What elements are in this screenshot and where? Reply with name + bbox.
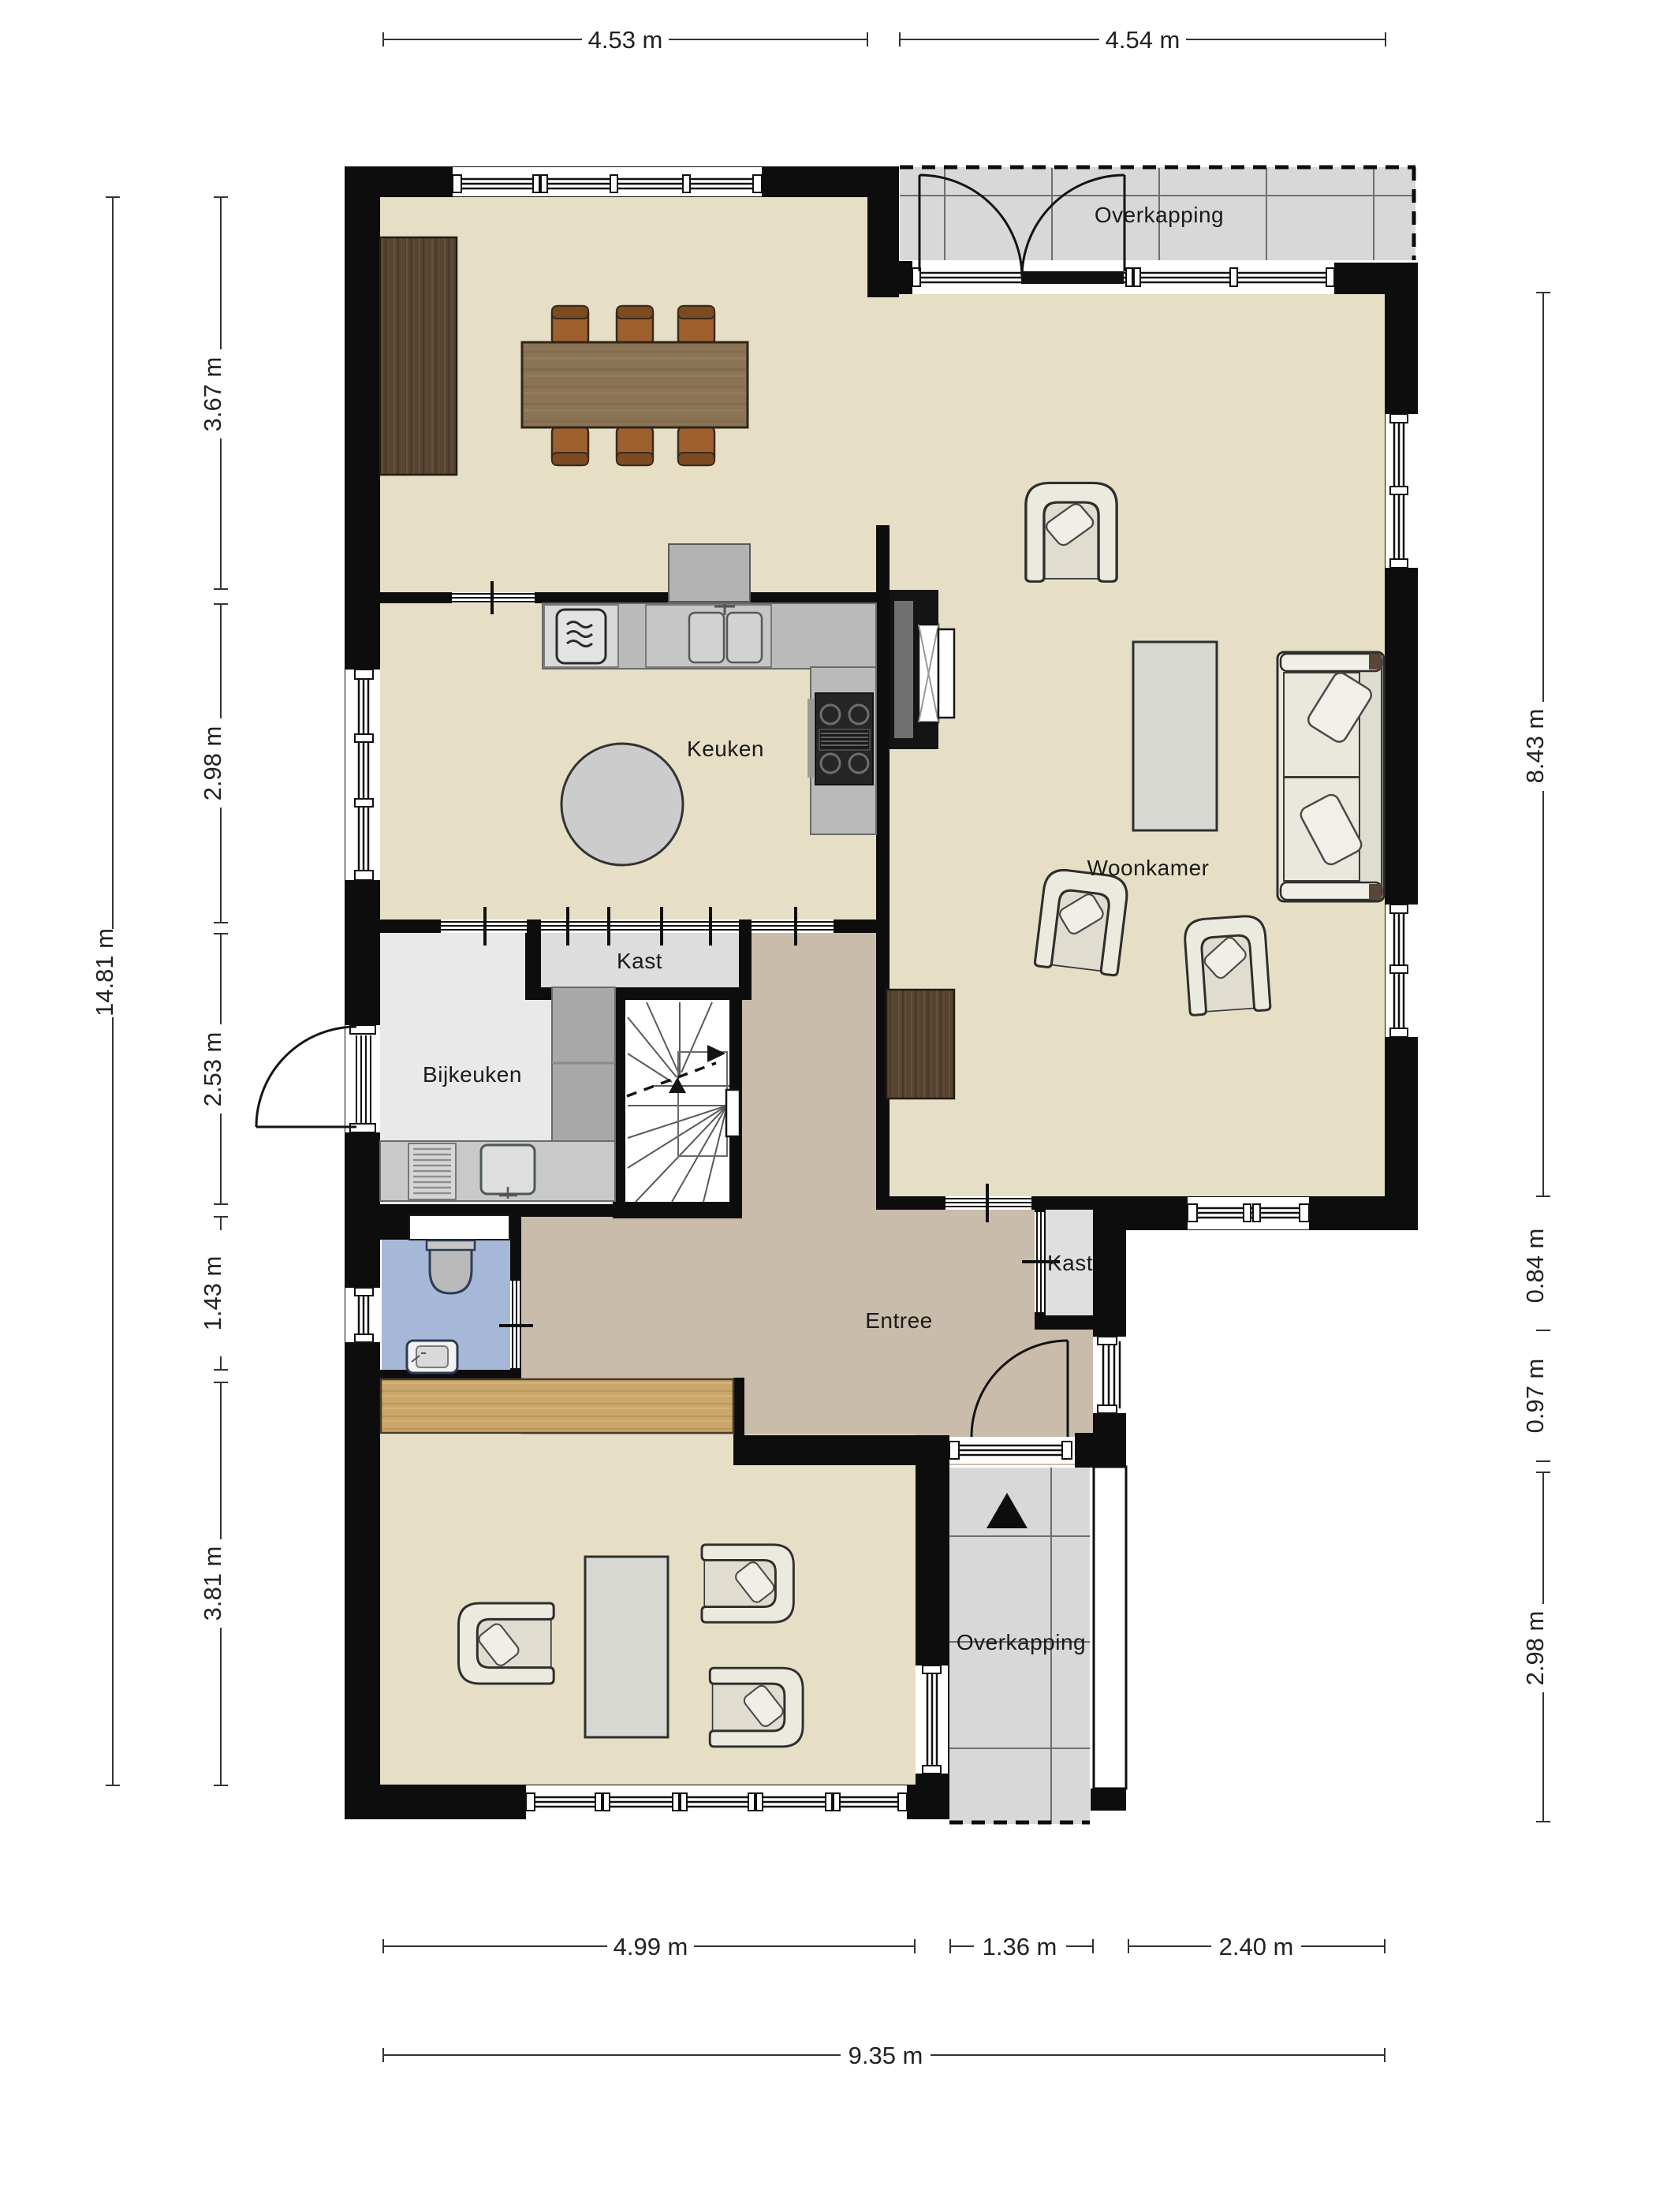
svg-text:Kast: Kast bbox=[617, 949, 662, 973]
svg-text:14.81 m: 14.81 m bbox=[91, 928, 118, 1016]
svg-text:Bijkeuken: Bijkeuken bbox=[423, 1062, 522, 1087]
svg-text:0.97 m: 0.97 m bbox=[1521, 1359, 1549, 1434]
svg-text:2.98 m: 2.98 m bbox=[199, 726, 226, 801]
svg-text:2.53 m: 2.53 m bbox=[199, 1032, 226, 1107]
svg-text:Overkapping: Overkapping bbox=[957, 1630, 1086, 1654]
svg-text:0.84 m: 0.84 m bbox=[1521, 1229, 1549, 1304]
svg-text:4.99 m: 4.99 m bbox=[614, 1933, 688, 1960]
svg-text:4.53 m: 4.53 m bbox=[588, 26, 663, 54]
svg-text:1.43 m: 1.43 m bbox=[199, 1256, 226, 1331]
svg-text:3.67 m: 3.67 m bbox=[199, 357, 226, 432]
svg-text:9.35 m: 9.35 m bbox=[849, 2042, 923, 2069]
svg-text:1.36 m: 1.36 m bbox=[983, 1933, 1057, 1960]
svg-text:Overkapping: Overkapping bbox=[1095, 203, 1224, 227]
svg-text:2.40 m: 2.40 m bbox=[1219, 1933, 1294, 1960]
svg-text:Entree: Entree bbox=[865, 1308, 933, 1333]
svg-text:Woonkamer: Woonkamer bbox=[1087, 856, 1210, 880]
svg-text:3.81 m: 3.81 m bbox=[199, 1546, 226, 1621]
svg-text:8.43 m: 8.43 m bbox=[1521, 709, 1549, 784]
svg-text:2.98 m: 2.98 m bbox=[1521, 1611, 1549, 1686]
svg-text:Kast: Kast bbox=[1047, 1251, 1093, 1275]
svg-text:Keuken: Keuken bbox=[687, 737, 764, 761]
svg-text:4.54 m: 4.54 m bbox=[1106, 26, 1180, 54]
